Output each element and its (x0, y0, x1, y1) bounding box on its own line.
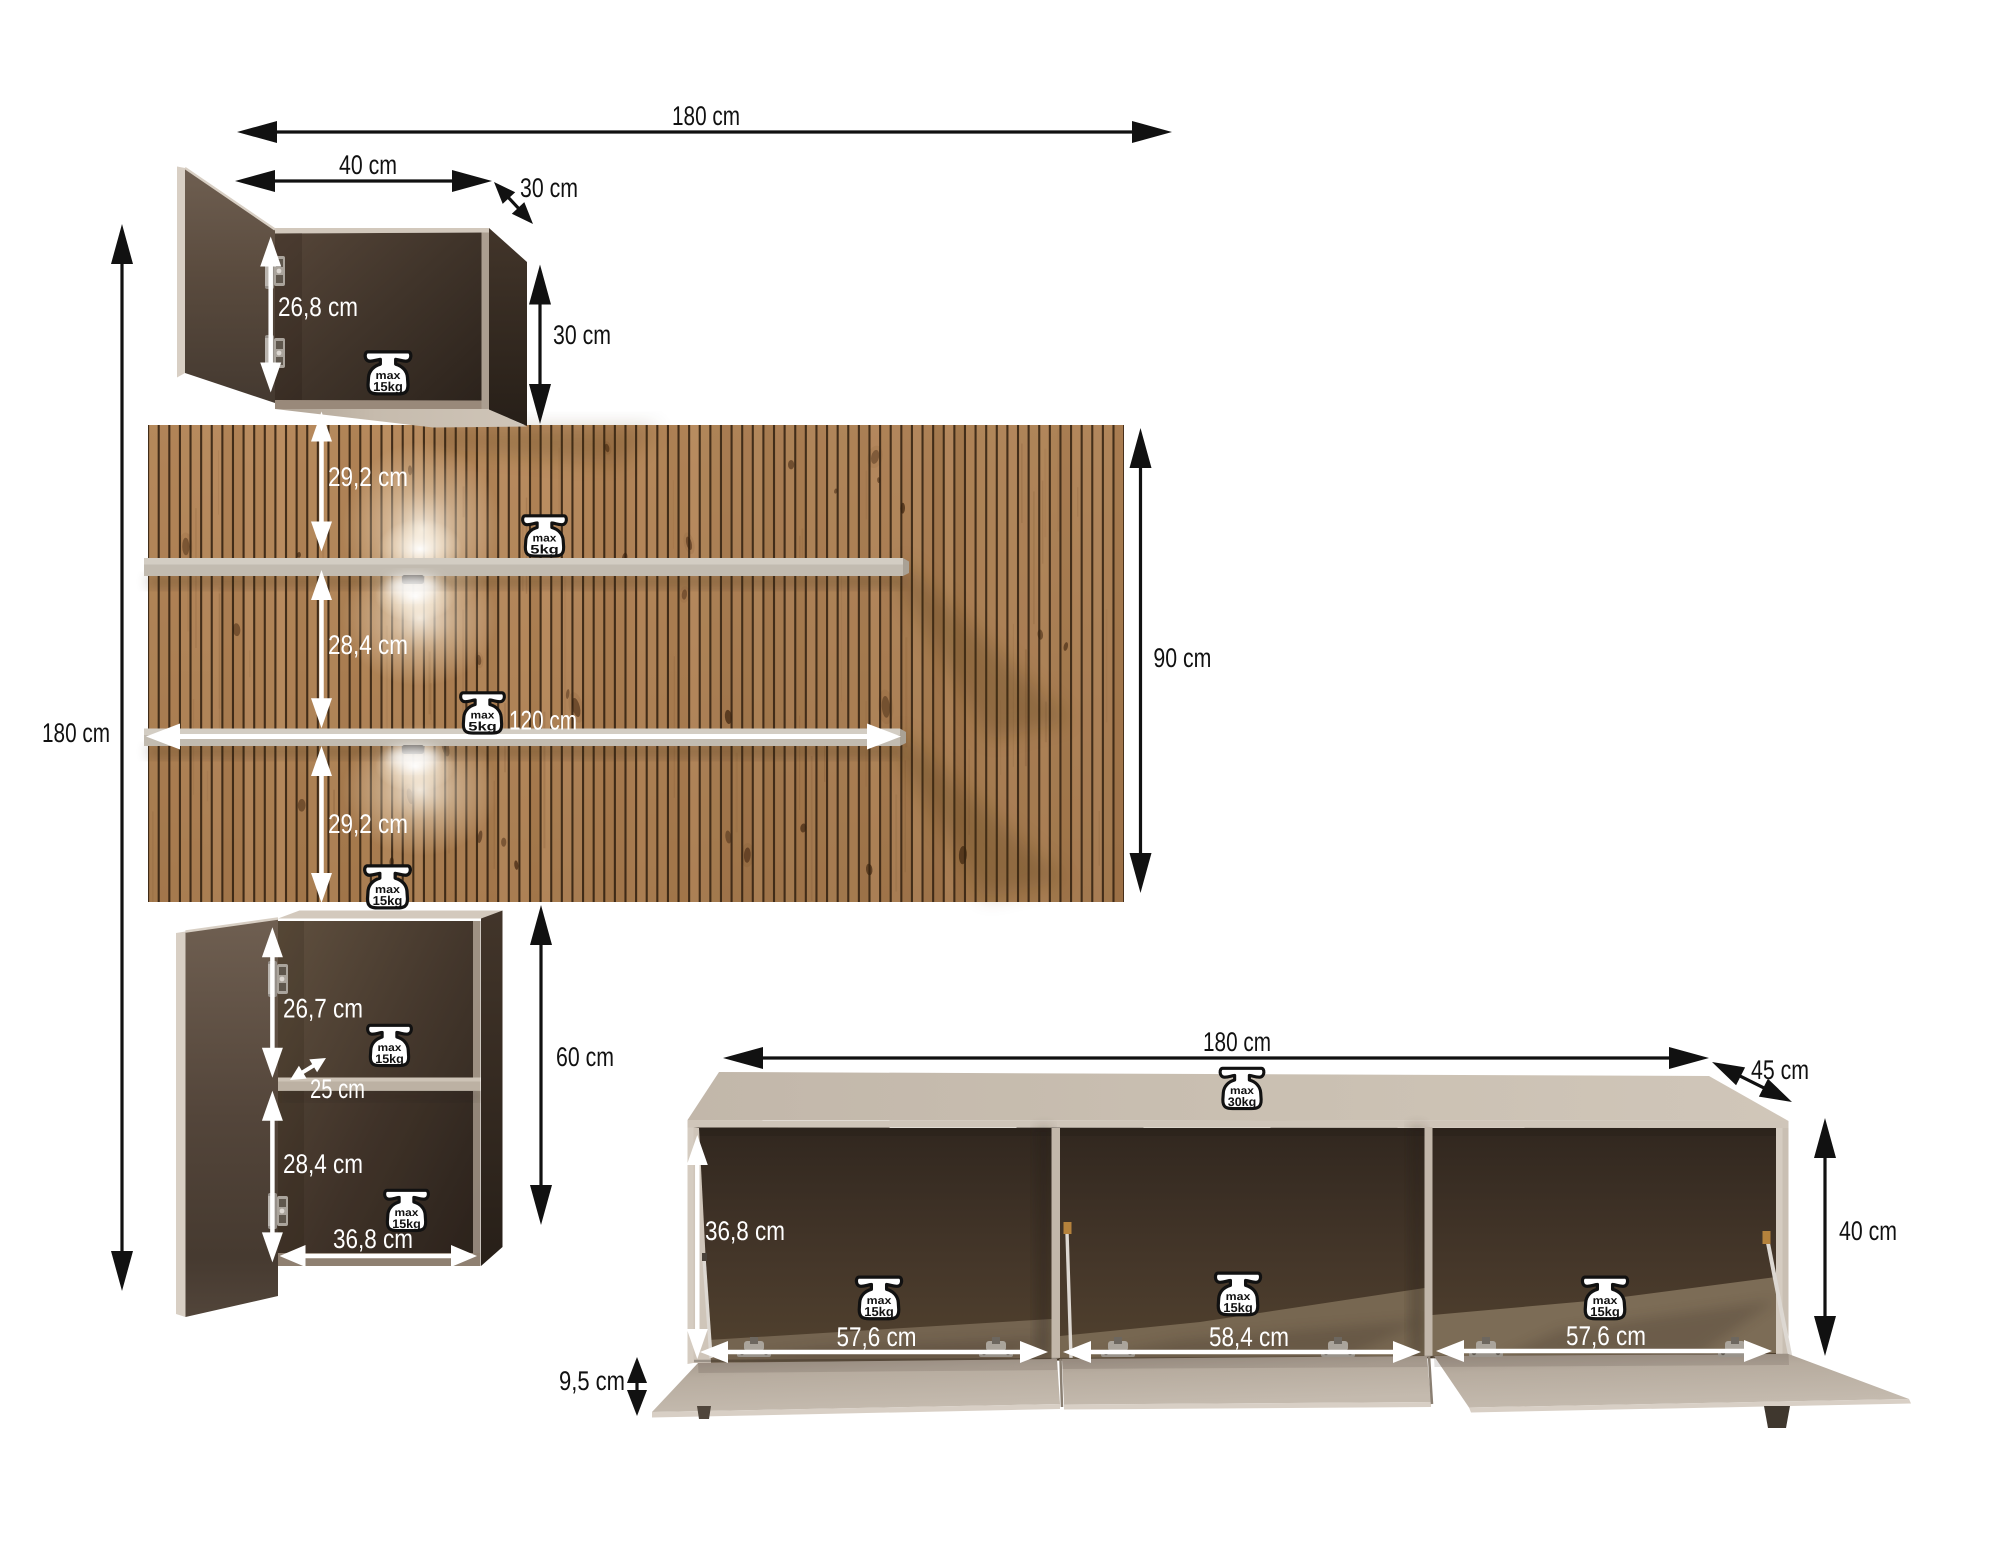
svg-text:9,5 cm: 9,5 cm (559, 1366, 625, 1396)
svg-text:15kg: 15kg (373, 380, 403, 394)
svg-text:15kg: 15kg (373, 894, 403, 908)
svg-text:40 cm: 40 cm (339, 150, 397, 180)
svg-text:30kg: 30kg (1228, 1095, 1257, 1109)
svg-text:15kg: 15kg (392, 1217, 421, 1231)
svg-text:45 cm: 45 cm (1751, 1055, 1809, 1085)
svg-text:15kg: 15kg (1223, 1301, 1252, 1315)
svg-text:25 cm: 25 cm (310, 1074, 365, 1104)
svg-text:58,4 cm: 58,4 cm (1209, 1322, 1289, 1352)
svg-text:30 cm: 30 cm (553, 320, 611, 350)
svg-text:180 cm: 180 cm (672, 101, 740, 131)
svg-text:120 cm: 120 cm (509, 706, 577, 736)
svg-text:5kg: 5kg (530, 542, 559, 556)
svg-text:28,4 cm: 28,4 cm (283, 1149, 363, 1179)
svg-text:15kg: 15kg (1590, 1305, 1619, 1319)
svg-text:90 cm: 90 cm (1153, 643, 1211, 673)
svg-text:180 cm: 180 cm (42, 718, 110, 748)
svg-text:36,8 cm: 36,8 cm (705, 1216, 785, 1246)
svg-text:28,4 cm: 28,4 cm (328, 630, 408, 660)
svg-text:180 cm: 180 cm (1203, 1027, 1271, 1057)
svg-text:15kg: 15kg (375, 1052, 404, 1066)
svg-text:15kg: 15kg (864, 1305, 893, 1319)
svg-text:57,6 cm: 57,6 cm (837, 1322, 917, 1352)
svg-text:60 cm: 60 cm (556, 1042, 614, 1072)
svg-text:26,7 cm: 26,7 cm (283, 994, 363, 1024)
svg-text:29,2 cm: 29,2 cm (328, 462, 408, 492)
svg-text:57,6 cm: 57,6 cm (1566, 1321, 1646, 1351)
svg-text:30 cm: 30 cm (520, 173, 578, 203)
svg-text:5kg: 5kg (468, 719, 497, 733)
svg-text:26,8 cm: 26,8 cm (278, 292, 358, 322)
svg-text:29,2 cm: 29,2 cm (328, 809, 408, 839)
svg-text:40 cm: 40 cm (1839, 1216, 1897, 1246)
